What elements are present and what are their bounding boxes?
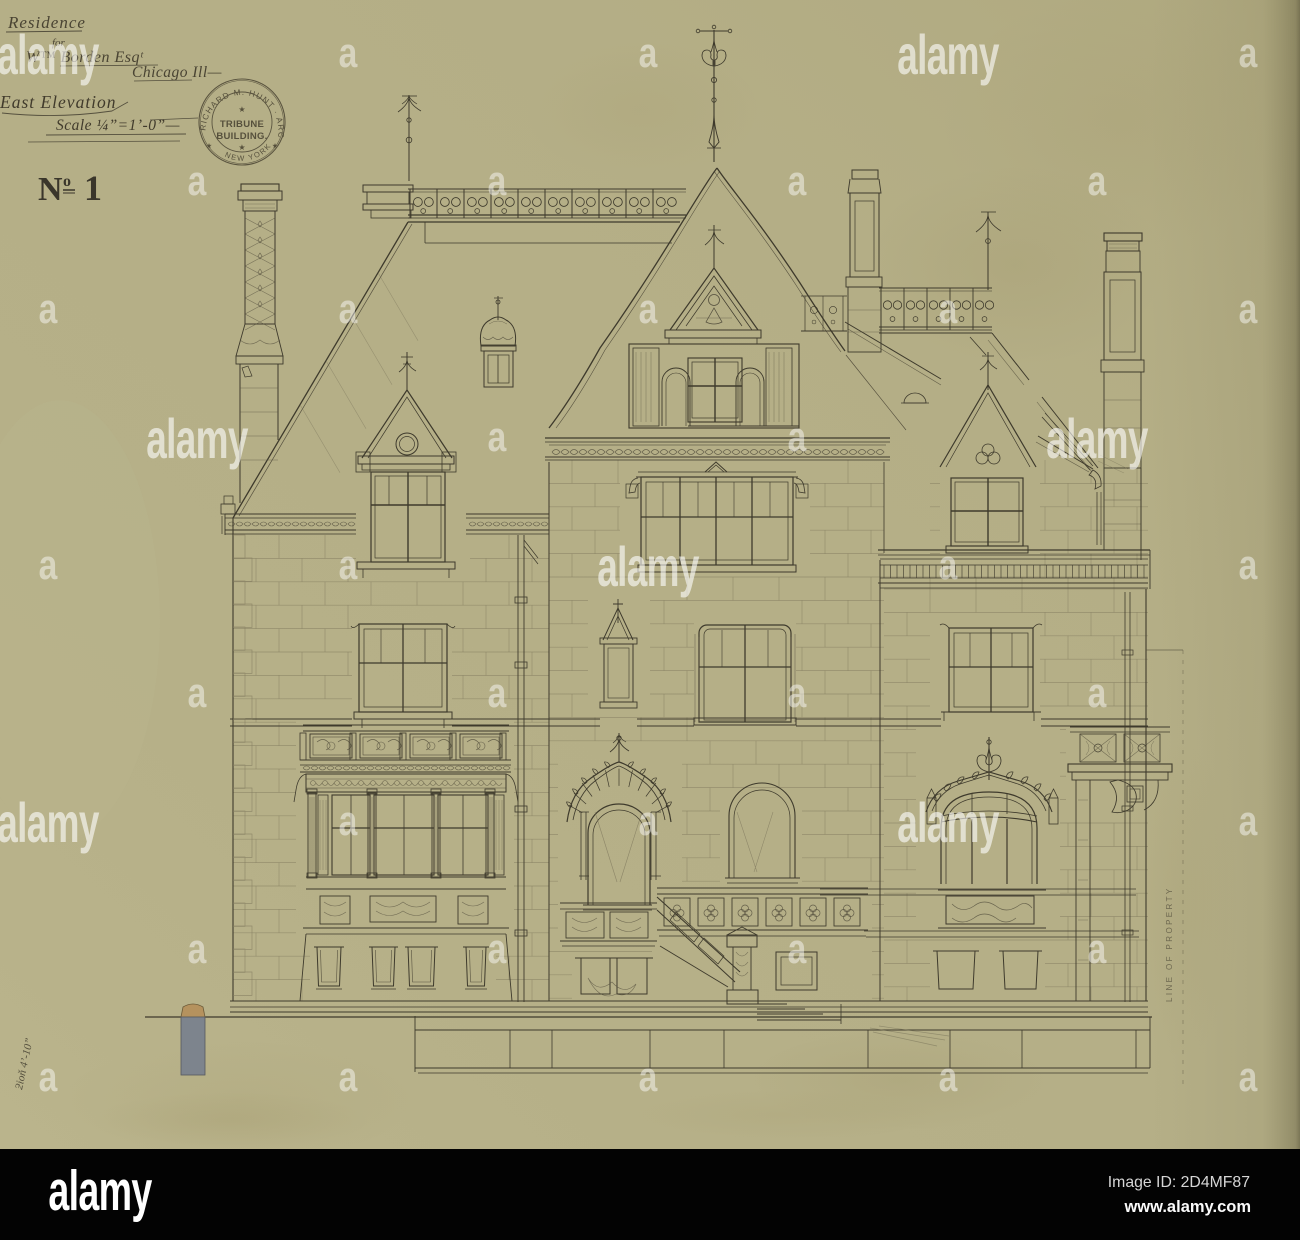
svg-text:a: a bbox=[339, 31, 358, 77]
svg-text:a: a bbox=[339, 543, 358, 589]
svg-text:BUILDING.: BUILDING. bbox=[216, 131, 267, 142]
svg-text:a: a bbox=[488, 415, 507, 461]
svg-text:N: N bbox=[38, 171, 63, 208]
svg-text:Chicago Ill—: Chicago Ill— bbox=[132, 64, 222, 81]
svg-text:a: a bbox=[339, 287, 358, 333]
svg-text:o: o bbox=[63, 173, 71, 190]
svg-text:a: a bbox=[1239, 287, 1258, 333]
svg-text:a: a bbox=[339, 1055, 358, 1101]
svg-text:a: a bbox=[939, 543, 958, 589]
svg-text:a: a bbox=[488, 671, 507, 717]
svg-text:a: a bbox=[488, 927, 507, 973]
svg-text:1: 1 bbox=[84, 168, 102, 208]
svg-text:a: a bbox=[788, 415, 807, 461]
svg-text:★: ★ bbox=[272, 142, 278, 150]
svg-text:alamy: alamy bbox=[48, 1159, 152, 1223]
svg-text:★: ★ bbox=[238, 105, 245, 114]
svg-text:a: a bbox=[39, 1055, 58, 1101]
svg-text:a: a bbox=[1239, 543, 1258, 589]
svg-text:a: a bbox=[939, 1055, 958, 1101]
svg-text:a: a bbox=[1088, 671, 1107, 717]
svg-text:a: a bbox=[339, 799, 358, 845]
svg-text:a: a bbox=[488, 159, 507, 205]
svg-text:a: a bbox=[1088, 927, 1107, 973]
svg-text:alamy: alamy bbox=[0, 24, 100, 87]
svg-text:a: a bbox=[188, 159, 207, 205]
svg-text:a: a bbox=[639, 1055, 658, 1101]
svg-text:alamy: alamy bbox=[1046, 408, 1149, 471]
svg-text:★: ★ bbox=[238, 143, 245, 152]
svg-text:Image ID: 2D4MF87: Image ID: 2D4MF87 bbox=[1108, 1174, 1250, 1191]
svg-text:TRIBUNE: TRIBUNE bbox=[220, 119, 264, 130]
svg-text:a: a bbox=[639, 287, 658, 333]
svg-text:a: a bbox=[1239, 799, 1258, 845]
svg-text:a: a bbox=[1239, 31, 1258, 77]
svg-text:a: a bbox=[639, 31, 658, 77]
svg-text:a: a bbox=[188, 671, 207, 717]
svg-text:alamy: alamy bbox=[897, 792, 1000, 855]
svg-text:★: ★ bbox=[206, 142, 212, 150]
svg-text:alamy: alamy bbox=[897, 24, 1000, 87]
svg-text:www.alamy.com: www.alamy.com bbox=[1123, 1198, 1251, 1216]
svg-text:a: a bbox=[639, 799, 658, 845]
svg-text:a: a bbox=[1239, 1055, 1258, 1101]
svg-text:alamy: alamy bbox=[597, 536, 700, 599]
svg-text:alamy: alamy bbox=[146, 408, 249, 471]
svg-text:a: a bbox=[939, 287, 958, 333]
svg-text:a: a bbox=[788, 927, 807, 973]
svg-text:a: a bbox=[788, 671, 807, 717]
svg-text:a: a bbox=[188, 927, 207, 973]
svg-text:alamy: alamy bbox=[0, 792, 100, 855]
svg-text:East Elevation: East Elevation bbox=[0, 92, 117, 112]
svg-text:a: a bbox=[788, 159, 807, 205]
svg-text:a: a bbox=[1088, 159, 1107, 205]
svg-text:a: a bbox=[39, 543, 58, 589]
svg-text:a: a bbox=[39, 287, 58, 333]
